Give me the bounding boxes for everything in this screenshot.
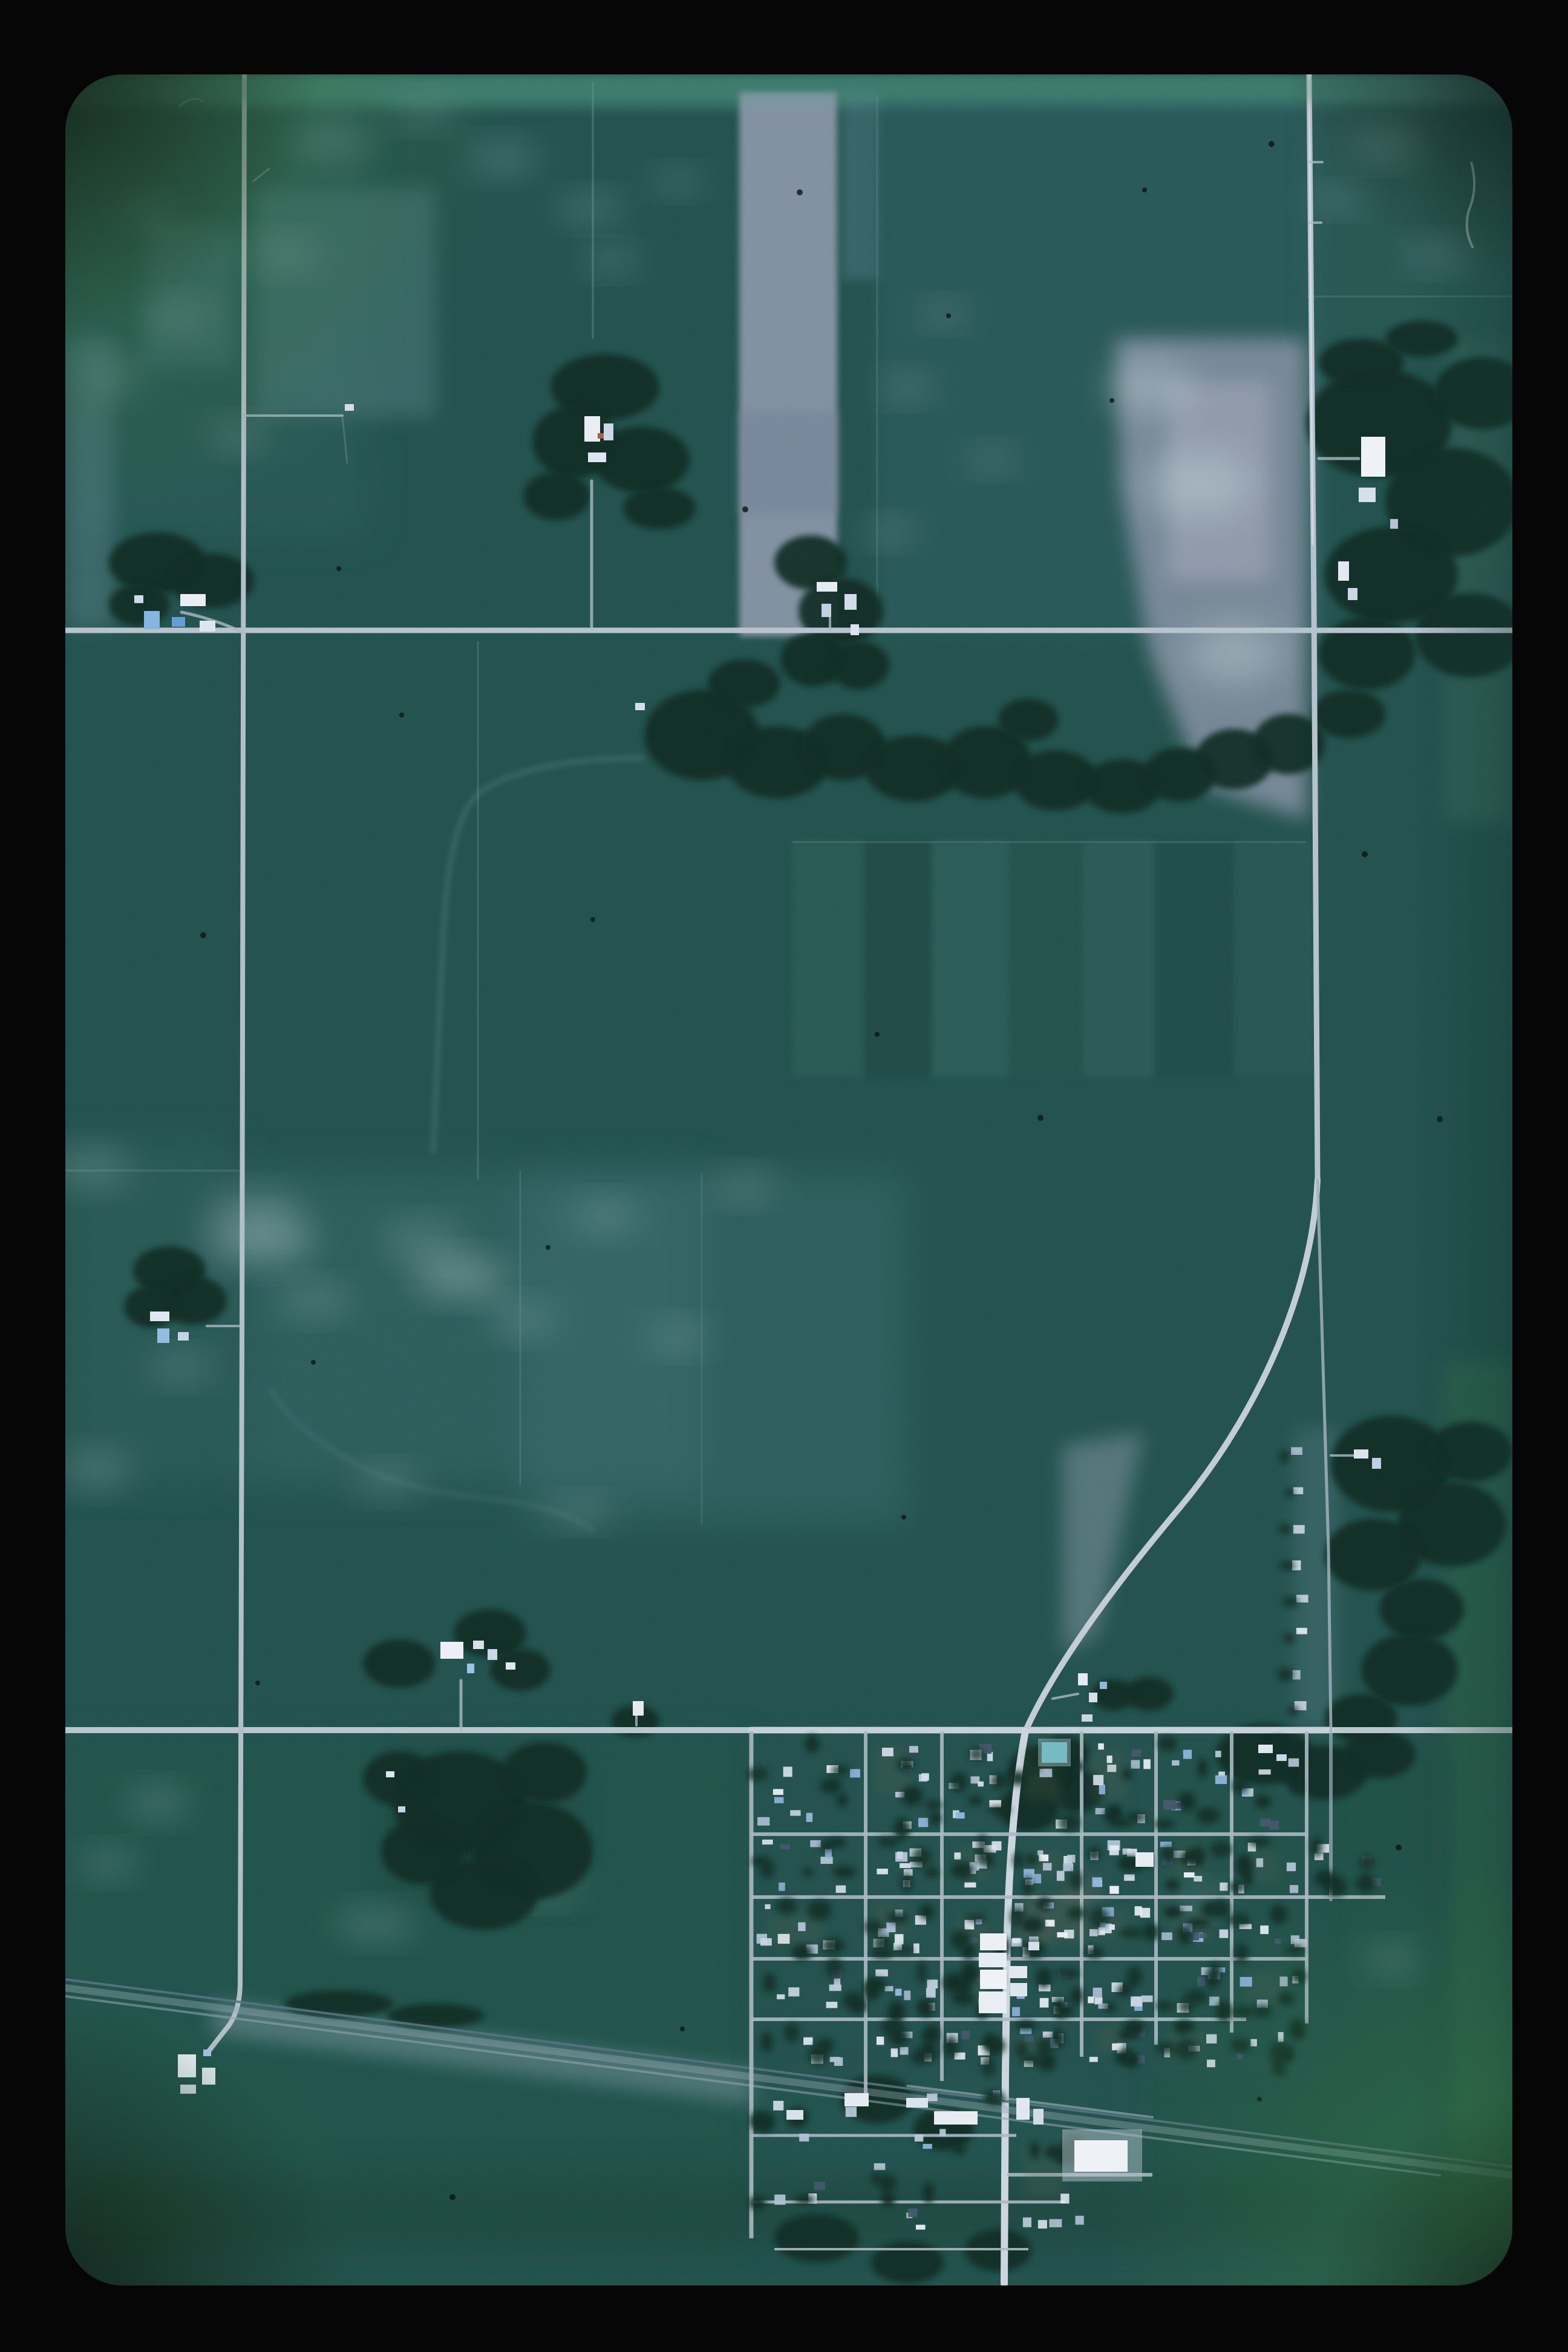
photo-canvas (0, 0, 1568, 2352)
aerial-photo (48, 74, 1530, 2285)
aerial-slide (0, 0, 1568, 2352)
vignette-layer (65, 74, 1512, 2285)
film-grain (65, 74, 1512, 2285)
